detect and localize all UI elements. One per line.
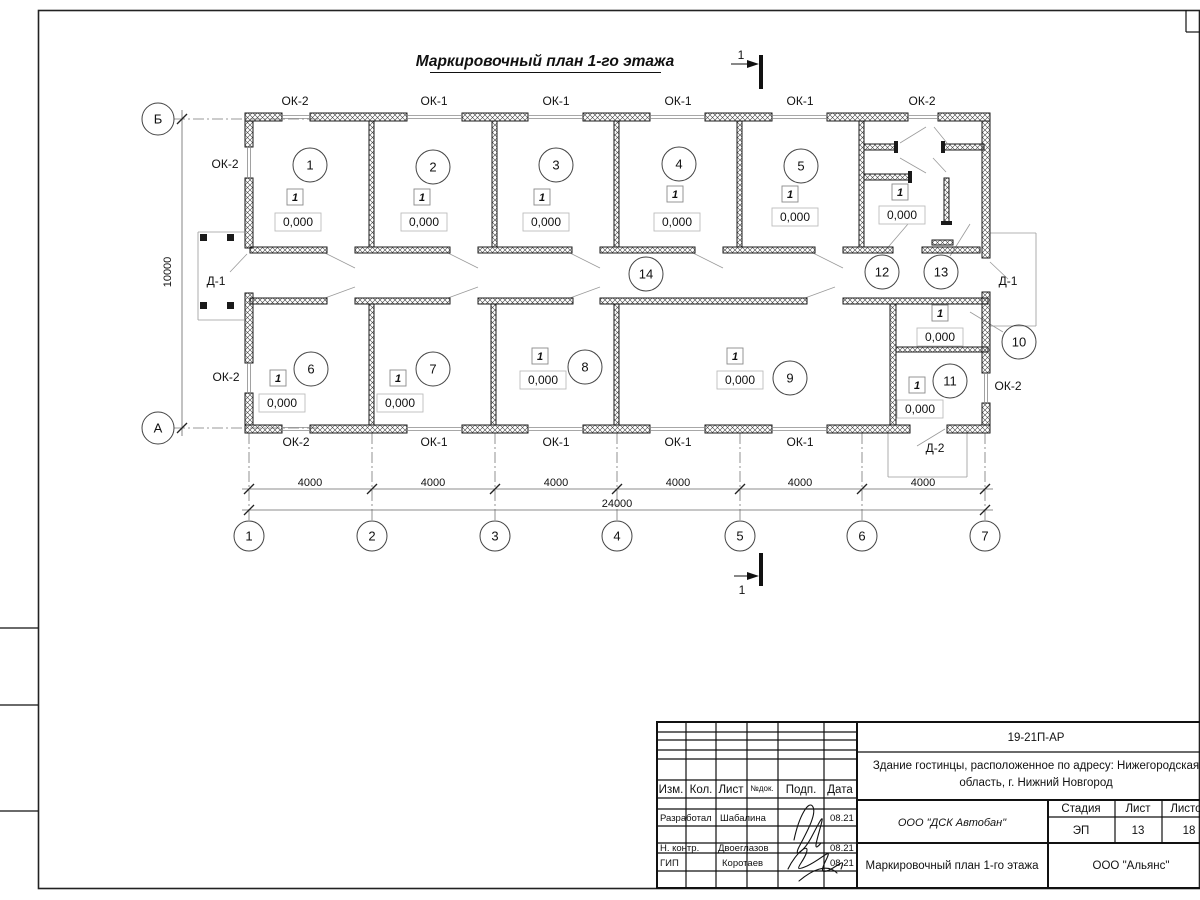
col-list: Лист bbox=[719, 784, 745, 796]
role-date: 08.21 bbox=[830, 843, 854, 854]
leader-line bbox=[230, 254, 247, 272]
porch-column bbox=[227, 302, 234, 309]
room-number: 5 bbox=[797, 159, 804, 174]
sheets-label: Листов bbox=[1170, 803, 1200, 815]
opening-label: ОК-2 bbox=[282, 94, 309, 108]
floor-plan: 4000400040004000400040002400010000123456… bbox=[142, 94, 1036, 551]
leader-line bbox=[900, 127, 926, 143]
room-number: 2 bbox=[429, 160, 436, 175]
wall-segment bbox=[859, 121, 864, 247]
porch-column bbox=[227, 234, 234, 241]
room-number: 3 bbox=[552, 158, 559, 173]
room-number: 9 bbox=[786, 371, 793, 386]
wall-segment bbox=[492, 121, 497, 247]
opening-label: ОК-2 bbox=[995, 379, 1022, 393]
wall-segment bbox=[600, 298, 807, 304]
axis-number: 7 bbox=[981, 529, 988, 544]
section-mark-top: 1 bbox=[731, 48, 763, 89]
leader-line bbox=[934, 127, 947, 143]
opening-label: ОК-1 bbox=[543, 435, 570, 449]
wall-segment bbox=[478, 298, 573, 304]
signature bbox=[794, 805, 822, 853]
elevation-value: 0,000 bbox=[267, 396, 297, 410]
leader-line bbox=[805, 287, 835, 298]
room-number: 7 bbox=[429, 362, 436, 377]
role-label: Н. контр. bbox=[660, 843, 699, 854]
room-class-marker: 1 bbox=[292, 192, 298, 204]
wall-segment bbox=[245, 425, 282, 433]
wall-segment bbox=[310, 425, 407, 433]
design-company: ООО "Альянс" bbox=[1093, 860, 1170, 872]
wall-segment bbox=[705, 425, 772, 433]
porch-column bbox=[200, 234, 207, 241]
wall-segment bbox=[943, 144, 984, 150]
wall-segment bbox=[705, 113, 772, 121]
project-code: 19-21П-АР bbox=[1008, 732, 1065, 744]
room-number: 13 bbox=[934, 265, 948, 280]
wall-segment bbox=[896, 347, 988, 352]
elevation-value: 0,000 bbox=[385, 396, 415, 410]
sheet-value: 13 bbox=[1132, 825, 1145, 837]
wall-end-cap bbox=[908, 171, 912, 183]
sheet-label: Лист bbox=[1126, 803, 1152, 815]
opening-label: ОК-1 bbox=[665, 435, 692, 449]
wall-segment bbox=[310, 113, 407, 121]
leader-line bbox=[325, 253, 355, 268]
wall-segment bbox=[864, 174, 910, 180]
opening-label: ОК-1 bbox=[543, 94, 570, 108]
opening-label: Д-2 bbox=[926, 441, 945, 455]
opening-label: Д-1 bbox=[207, 274, 226, 288]
axis-number: 5 bbox=[736, 529, 743, 544]
wall-end-cap bbox=[941, 221, 952, 225]
dimension-value: 4000 bbox=[298, 477, 322, 489]
section-mark-line bbox=[759, 55, 763, 89]
opening-label: ОК-1 bbox=[787, 94, 814, 108]
elevation-value: 0,000 bbox=[528, 373, 558, 387]
wall-segment bbox=[843, 247, 893, 253]
section-number: 1 bbox=[739, 583, 746, 597]
drawing-canvas: Маркировочный план 1-го этажа 1 1 400040… bbox=[0, 0, 1200, 900]
room-class-marker: 1 bbox=[732, 351, 738, 363]
col-data: Дата bbox=[827, 784, 853, 796]
wall-segment bbox=[614, 304, 619, 425]
project-address-line2: область, г. Нижний Новгород bbox=[959, 777, 1113, 789]
leader-line bbox=[933, 158, 946, 172]
leader-line bbox=[900, 158, 926, 173]
leader-line bbox=[325, 287, 355, 298]
leader-line bbox=[570, 287, 600, 298]
leader-line bbox=[448, 253, 478, 268]
wall-segment bbox=[355, 298, 450, 304]
role-label: Разработал bbox=[660, 813, 712, 824]
title-block: 19-21П-АР Здание гостинцы, расположенное… bbox=[657, 722, 1200, 888]
room-class-marker: 1 bbox=[395, 373, 401, 385]
room-number: 12 bbox=[875, 265, 889, 280]
elevation-value: 0,000 bbox=[531, 215, 561, 229]
axis-number: 6 bbox=[858, 529, 865, 544]
elevation-value: 0,000 bbox=[780, 210, 810, 224]
wall-segment bbox=[355, 247, 450, 253]
wall-segment bbox=[827, 425, 910, 433]
room-class-marker: 1 bbox=[914, 380, 920, 392]
wall-segment bbox=[737, 121, 742, 247]
wall-segment bbox=[890, 304, 896, 425]
room-number: 6 bbox=[307, 362, 314, 377]
leader-line bbox=[813, 253, 843, 268]
role-date: 08.21 bbox=[830, 813, 854, 824]
role-name: Двоеглазов bbox=[718, 843, 769, 854]
wall-segment bbox=[245, 178, 253, 248]
room-class-marker: 1 bbox=[537, 351, 543, 363]
section-arrow-icon bbox=[747, 60, 759, 68]
elevation-value: 0,000 bbox=[725, 373, 755, 387]
opening-label: ОК-1 bbox=[665, 94, 692, 108]
role-label: ГИП bbox=[660, 858, 679, 869]
room-number: 4 bbox=[675, 157, 682, 172]
drawing-title: Маркировочный план 1-го этажа bbox=[416, 53, 675, 70]
wall-segment bbox=[245, 113, 282, 121]
wall-segment bbox=[583, 425, 650, 433]
wall-segment bbox=[600, 247, 695, 253]
wall-segment bbox=[938, 113, 990, 121]
opening-label: ОК-2 bbox=[909, 94, 936, 108]
wall-segment bbox=[245, 121, 253, 147]
opening-label: Д-1 bbox=[999, 274, 1018, 288]
wall-segment bbox=[827, 113, 908, 121]
col-izm: Изм. bbox=[659, 784, 684, 796]
leader-line bbox=[693, 253, 723, 268]
axis-letter: Б bbox=[154, 112, 163, 127]
axis-number: 2 bbox=[368, 529, 375, 544]
dimension-value: 4000 bbox=[911, 477, 935, 489]
wall-segment bbox=[723, 247, 815, 253]
wall-segment bbox=[947, 425, 990, 433]
opening-label: ОК-1 bbox=[421, 435, 448, 449]
elevation-value: 0,000 bbox=[409, 215, 439, 229]
dimension-total-value: 24000 bbox=[602, 498, 633, 510]
role-name: Шабалина bbox=[720, 813, 767, 824]
room-number: 11 bbox=[943, 374, 957, 389]
wall-segment bbox=[250, 298, 327, 304]
wall-segment bbox=[491, 304, 496, 425]
wall-end-cap bbox=[894, 141, 898, 153]
wall-segment bbox=[932, 240, 953, 245]
dimension-value: 4000 bbox=[788, 477, 812, 489]
dimension-value: 4000 bbox=[666, 477, 690, 489]
leader-line bbox=[448, 287, 478, 298]
wall-segment bbox=[369, 304, 374, 425]
axis-number: 4 bbox=[613, 529, 620, 544]
wall-segment bbox=[982, 403, 990, 425]
col-ndok: №док. bbox=[750, 784, 773, 793]
elevation-value: 0,000 bbox=[925, 330, 955, 344]
room-class-marker: 1 bbox=[672, 189, 678, 201]
wall-segment bbox=[478, 247, 572, 253]
wall-segment bbox=[614, 121, 619, 247]
dimension-value: 4000 bbox=[544, 477, 568, 489]
room-class-marker: 1 bbox=[275, 373, 281, 385]
elevation-value: 0,000 bbox=[887, 208, 917, 222]
role-name: Коротаев bbox=[722, 858, 763, 869]
wall-segment bbox=[982, 121, 990, 258]
room-class-marker: 1 bbox=[787, 189, 793, 201]
room-class-marker: 1 bbox=[937, 308, 943, 320]
room-class-marker: 1 bbox=[539, 192, 545, 204]
wall-segment bbox=[250, 247, 327, 253]
sheets-value: 18 bbox=[1183, 825, 1196, 837]
wall-segment bbox=[864, 144, 896, 150]
room-number: 8 bbox=[581, 360, 588, 375]
col-kol: Кол. bbox=[690, 784, 713, 796]
blueprint-page: Маркировочный план 1-го этажа 1 1 400040… bbox=[0, 0, 1200, 900]
contractor-org: ООО "ДСК Автобан" bbox=[898, 817, 1007, 829]
axis-letter: А bbox=[154, 421, 163, 436]
elevation-value: 0,000 bbox=[905, 402, 935, 416]
wall-end-cap bbox=[941, 141, 945, 153]
wall-segment bbox=[944, 178, 949, 223]
dimension-value: 4000 bbox=[421, 477, 445, 489]
dimension-value: 10000 bbox=[162, 257, 174, 288]
elevation-value: 0,000 bbox=[662, 215, 692, 229]
opening-label: ОК-1 bbox=[787, 435, 814, 449]
wall-segment bbox=[462, 113, 528, 121]
section-mark-bottom: 1 bbox=[734, 553, 763, 597]
wall-segment bbox=[922, 247, 980, 253]
leader-line bbox=[570, 253, 600, 268]
elevation-value: 0,000 bbox=[283, 215, 313, 229]
porch-column bbox=[200, 302, 207, 309]
axis-number: 1 bbox=[245, 529, 252, 544]
section-number: 1 bbox=[738, 48, 745, 62]
wall-segment bbox=[369, 121, 374, 247]
stage-label: Стадия bbox=[1061, 803, 1100, 815]
stage-value: ЭП bbox=[1073, 825, 1090, 837]
opening-label: ОК-2 bbox=[283, 435, 310, 449]
room-class-marker: 1 bbox=[897, 187, 903, 199]
wall-segment bbox=[583, 113, 650, 121]
room-number: 10 bbox=[1012, 335, 1026, 350]
room-number: 1 bbox=[306, 158, 313, 173]
opening-label: ОК-2 bbox=[212, 157, 239, 171]
room-class-marker: 1 bbox=[419, 192, 425, 204]
project-address-line1: Здание гостинцы, расположенное по адресу… bbox=[873, 760, 1199, 772]
room-number: 14 bbox=[639, 267, 653, 282]
opening-label: ОК-2 bbox=[213, 370, 240, 384]
section-mark-line bbox=[759, 553, 763, 586]
wall-segment bbox=[245, 393, 253, 425]
sheet-title: Маркировочный план 1-го этажа bbox=[866, 860, 1040, 872]
axis-number: 3 bbox=[491, 529, 498, 544]
wall-segment bbox=[462, 425, 528, 433]
opening-label: ОК-1 bbox=[421, 94, 448, 108]
col-podp: Подп. bbox=[786, 784, 817, 796]
wall-segment bbox=[843, 298, 988, 304]
section-arrow-icon bbox=[747, 572, 759, 580]
